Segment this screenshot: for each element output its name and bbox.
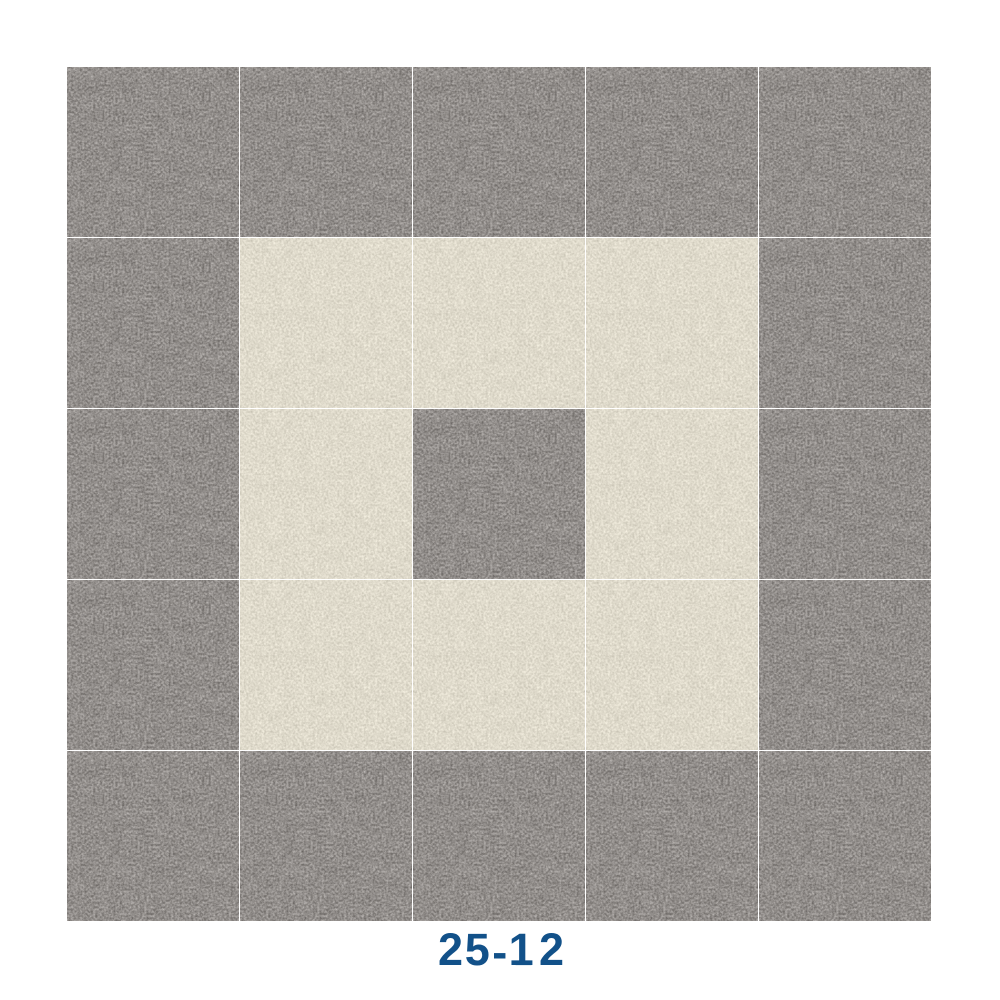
svg-text:1: 1 (509, 924, 534, 975)
svg-text:2: 2 (539, 924, 564, 975)
svg-text:2: 2 (438, 924, 463, 975)
svg-text:5: 5 (465, 924, 490, 975)
svg-text:-: - (492, 927, 507, 978)
